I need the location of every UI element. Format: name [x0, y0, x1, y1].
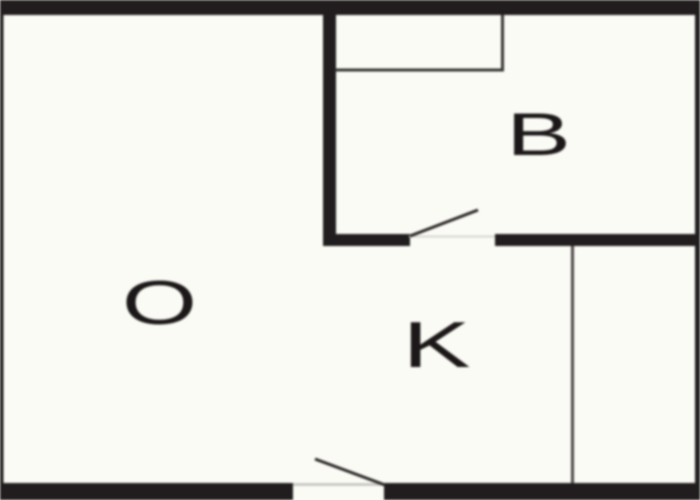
svg-text:B: B [506, 102, 571, 169]
svg-text:O: O [122, 268, 197, 337]
svg-text:K: K [402, 309, 470, 381]
